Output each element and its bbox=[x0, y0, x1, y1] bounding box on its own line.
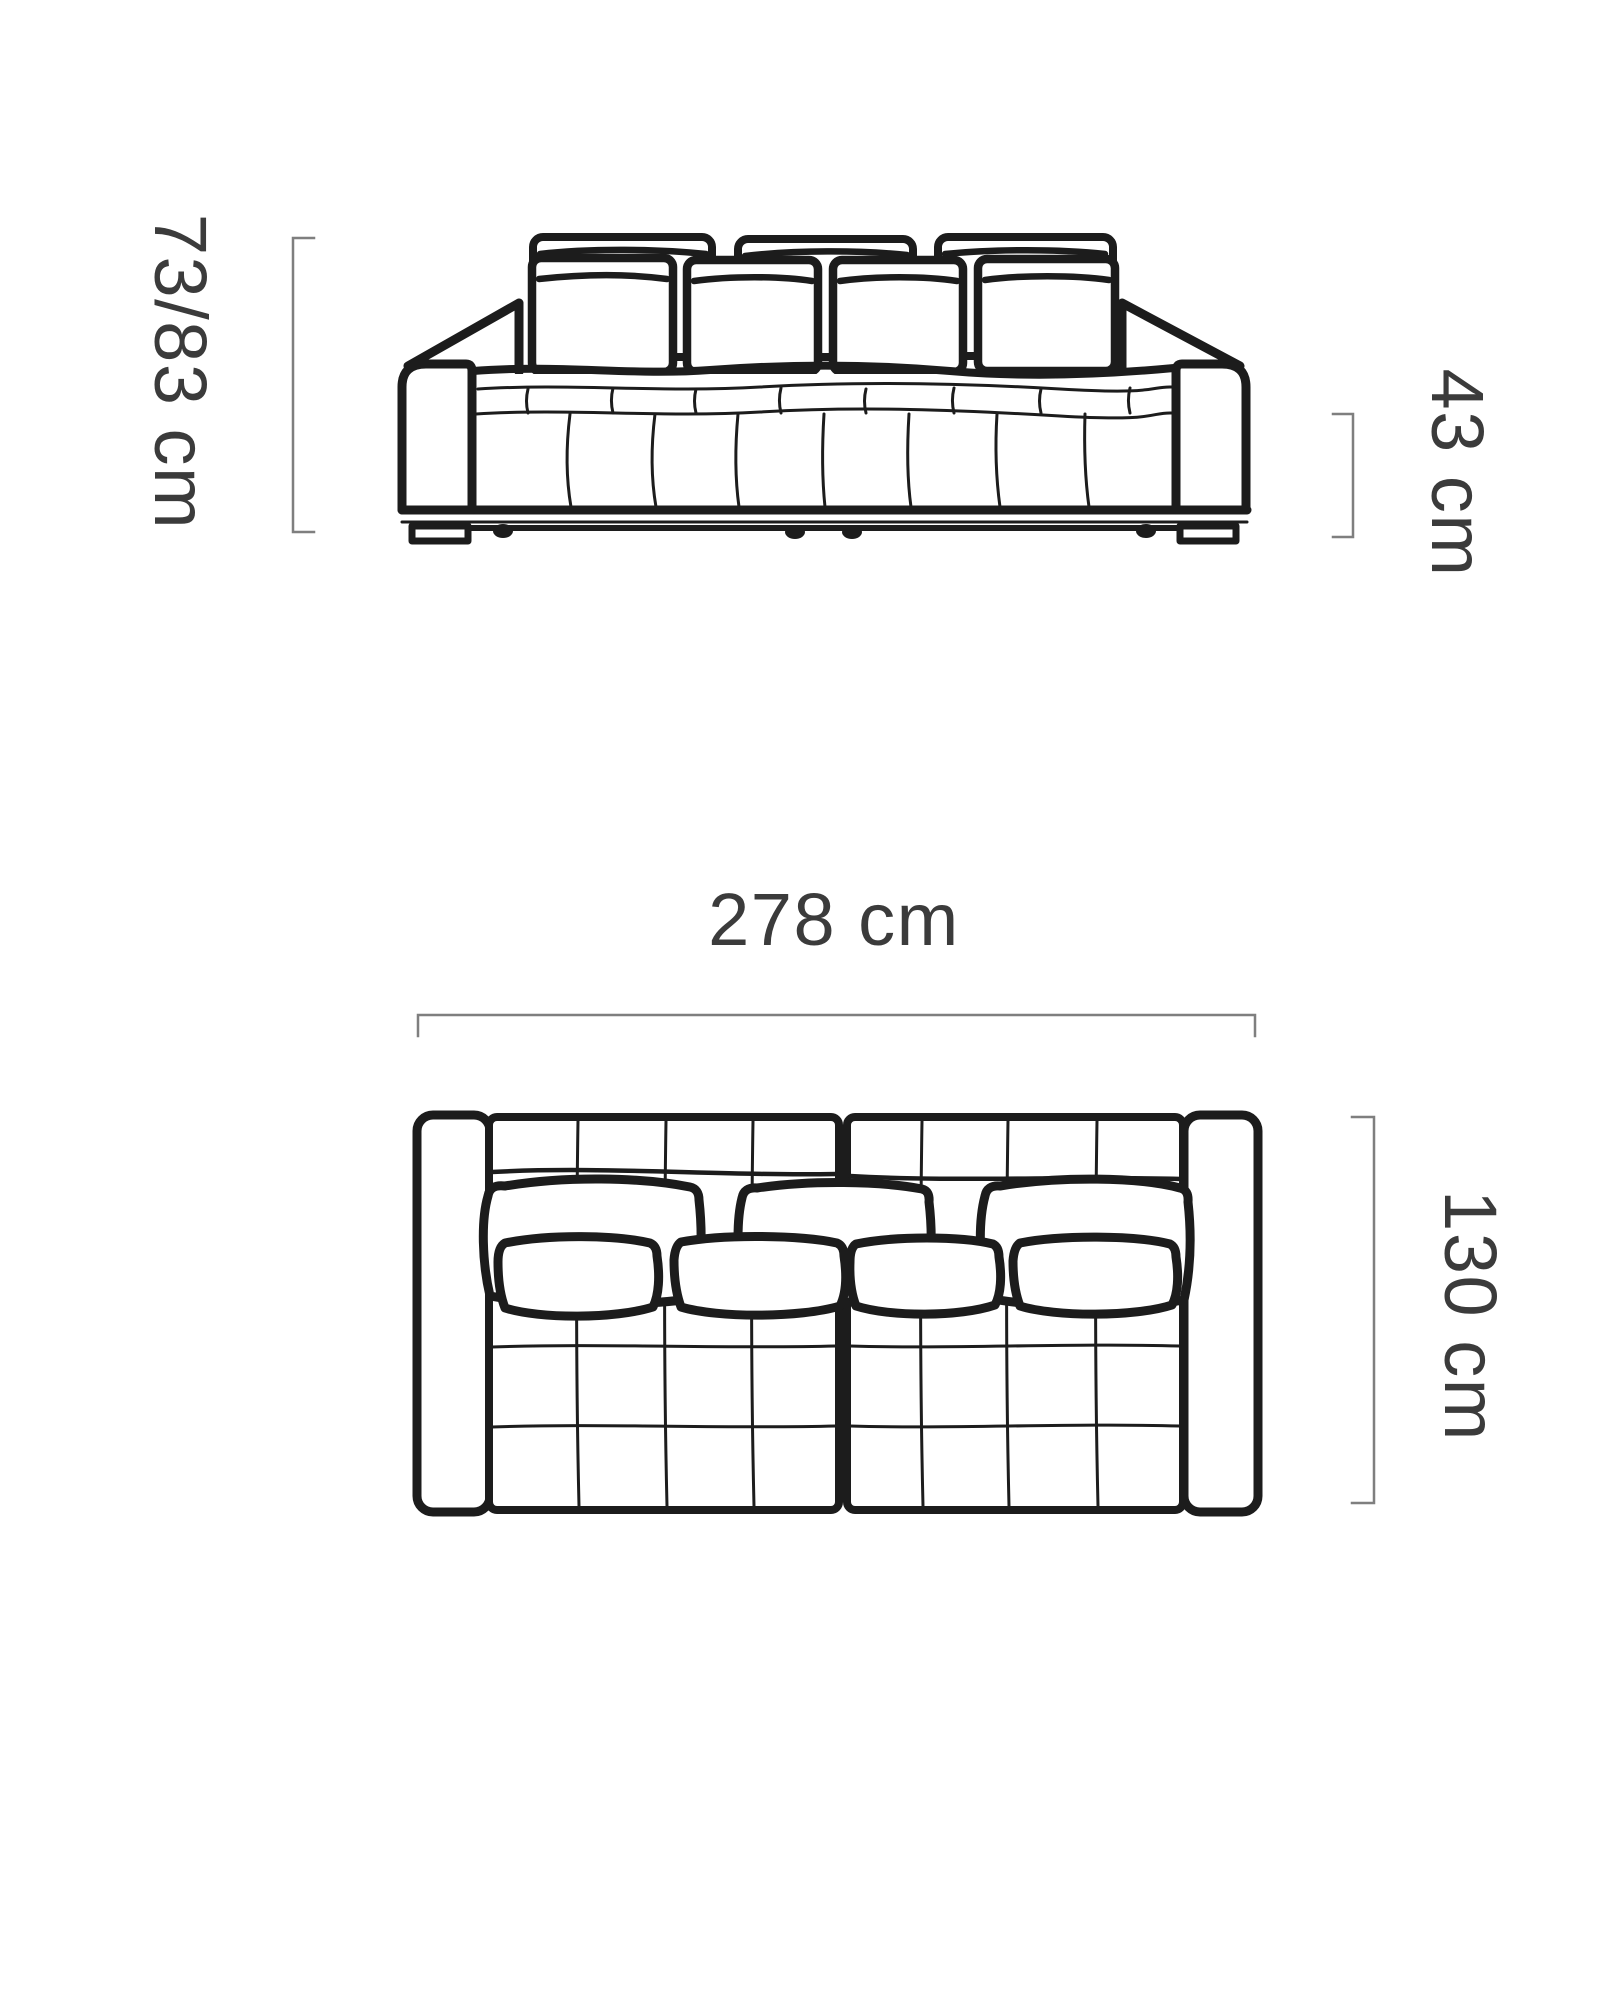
top-front-pillow bbox=[674, 1236, 846, 1315]
top-front-pillow bbox=[850, 1238, 1001, 1314]
seat-height-dimension-bracket bbox=[1333, 414, 1353, 537]
depth-dimension-bracket bbox=[1352, 1117, 1374, 1503]
seat-height-label: 43 cm bbox=[1416, 368, 1499, 577]
sofa-foot bbox=[493, 524, 513, 538]
sofa-foot bbox=[842, 525, 862, 539]
height-dimension-bracket bbox=[293, 238, 314, 532]
sofa-dimension-diagram: 73/83 cm 43 cm bbox=[0, 0, 1620, 2000]
top-depth-label: 130 cm bbox=[1429, 1190, 1512, 1442]
sofa-dimension-diagram-page: 73/83 cm 43 cm bbox=[0, 0, 1620, 2000]
top-front-pillows bbox=[498, 1236, 1178, 1316]
right-foot-block bbox=[1180, 526, 1236, 541]
top-front-pillow bbox=[1013, 1237, 1178, 1314]
front-height-label: 73/83 cm bbox=[139, 214, 222, 530]
sofa-foot bbox=[785, 525, 805, 539]
top-front-pillow bbox=[498, 1237, 659, 1317]
sofa-top-view-drawing bbox=[417, 1115, 1258, 1512]
left-armrest bbox=[402, 364, 472, 510]
top-left-armrest bbox=[417, 1115, 490, 1512]
right-armrest bbox=[1176, 364, 1246, 510]
top-right-armrest bbox=[1184, 1115, 1258, 1512]
width-dimension-line bbox=[418, 1015, 1255, 1036]
left-foot-block bbox=[412, 526, 468, 541]
top-width-label: 278 cm bbox=[708, 878, 960, 961]
sofa-front-view-drawing bbox=[402, 237, 1247, 541]
sofa-foot bbox=[1136, 524, 1156, 538]
